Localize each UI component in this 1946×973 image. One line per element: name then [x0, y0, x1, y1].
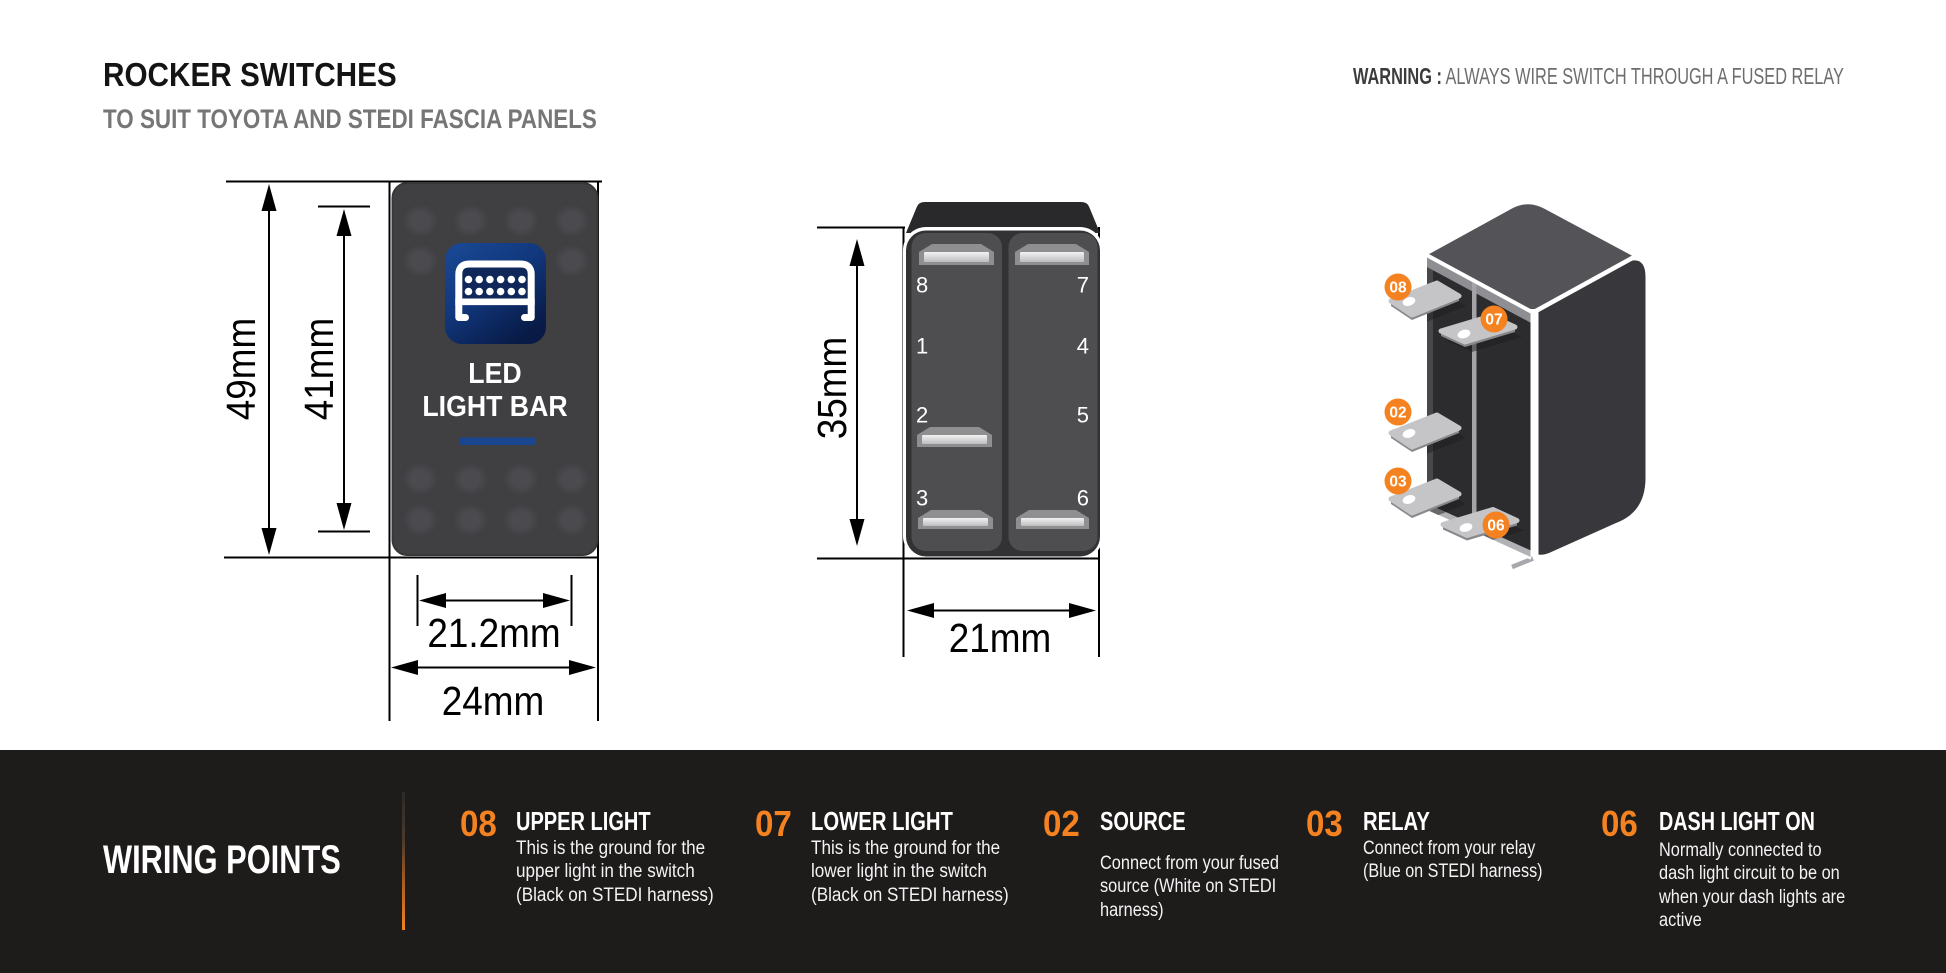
svg-text:07: 07	[1485, 312, 1502, 329]
svg-text:21.2mm: 21.2mm	[427, 611, 560, 656]
svg-text:LED: LED	[468, 357, 521, 389]
svg-text:2: 2	[916, 403, 928, 428]
svg-text:08: 08	[1389, 280, 1407, 297]
svg-text:7: 7	[1077, 273, 1089, 298]
svg-text:24mm: 24mm	[442, 679, 545, 724]
svg-text:LIGHT BAR: LIGHT BAR	[422, 390, 567, 422]
svg-text:3: 3	[916, 486, 928, 511]
svg-text:03: 03	[1389, 474, 1407, 491]
svg-text:41mm: 41mm	[297, 318, 342, 421]
svg-text:02: 02	[1389, 405, 1406, 422]
svg-text:5: 5	[1077, 403, 1089, 428]
svg-text:6: 6	[1077, 486, 1089, 511]
svg-text:1: 1	[916, 334, 928, 359]
svg-text:4: 4	[1077, 334, 1089, 359]
svg-text:35mm: 35mm	[810, 337, 855, 440]
svg-text:49mm: 49mm	[219, 318, 264, 421]
svg-text:21mm: 21mm	[949, 616, 1052, 661]
svg-text:06: 06	[1487, 518, 1505, 535]
svg-text:8: 8	[916, 273, 928, 298]
